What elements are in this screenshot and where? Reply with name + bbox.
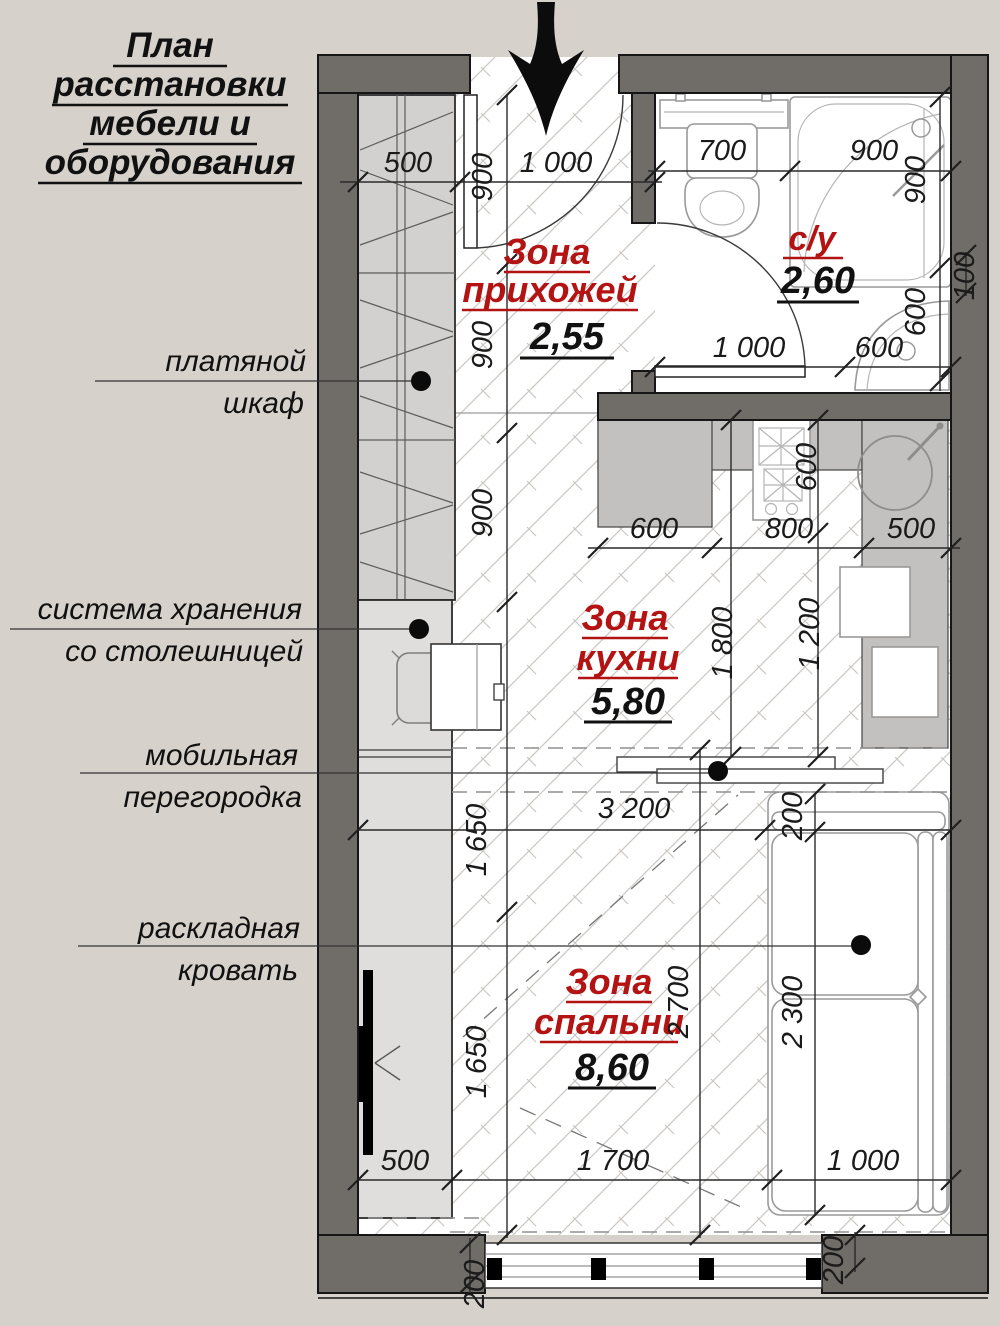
- dim-bath-100-right: 100: [949, 252, 981, 300]
- dim-bedroom-200: 200: [777, 792, 809, 841]
- title-line-1: План: [126, 26, 214, 65]
- dim-hall-1000: 1 000: [520, 147, 593, 179]
- bedroom-name-2: спальни: [534, 1001, 684, 1042]
- hallway-area: 2,55: [529, 316, 605, 358]
- dim-bottom-1700: 1 700: [577, 1145, 650, 1177]
- annotation-wardrobe-line2: шкаф: [223, 387, 304, 420]
- annotation-storage-line1: система хранения: [38, 593, 302, 626]
- title-line-3: мебели и: [89, 104, 251, 143]
- dim-bedroom-2300: 2 300: [777, 976, 809, 1050]
- dim-bath-700: 700: [698, 135, 746, 167]
- dim-bedroom-1650-2: 1 650: [461, 1026, 493, 1099]
- floor-plan-drawing: План расстановки мебели и оборудования п…: [0, 0, 1000, 1326]
- dim-kitchen-1200: 1 200: [794, 598, 826, 671]
- kitchen-appliance-2: [872, 647, 938, 717]
- dim-kitchen-600-top: 600: [791, 443, 823, 491]
- annotation-wardrobe-line1: платяной: [165, 345, 306, 378]
- dim-bath-600-right: 600: [900, 288, 932, 336]
- dim-bottom-200-right: 200: [818, 1236, 850, 1285]
- bathroom-area: 2,60: [780, 260, 855, 302]
- bedroom-area: 8,60: [575, 1047, 649, 1089]
- hallway-name-1: Зона: [504, 231, 591, 272]
- dim-bedroom-3200: 3 200: [598, 793, 671, 825]
- title-line-2: расстановки: [52, 65, 286, 104]
- annotation-storage-line2: со столешницей: [65, 635, 303, 668]
- title-line-4: оборудования: [45, 143, 296, 182]
- kitchen-name-1: Зона: [582, 597, 669, 638]
- dim-bath-900-top: 900: [850, 135, 898, 167]
- bedroom-name-1: Зона: [566, 961, 653, 1002]
- floor-plan-page: План расстановки мебели и оборудования п…: [0, 0, 1000, 1326]
- dim-bottom-1000: 1 000: [827, 1145, 900, 1177]
- hallway-name-2: прихожей: [462, 269, 637, 310]
- dim-bath-900-right: 900: [900, 156, 932, 204]
- dim-kitchen-800: 800: [765, 513, 813, 545]
- bathroom-name: с/у: [788, 220, 837, 258]
- kitchen-area: 5,80: [591, 681, 665, 723]
- annotation-partition-line2: перегородка: [123, 781, 302, 814]
- dim-kitchen-600-left: 600: [630, 513, 678, 545]
- dim-hall-500: 500: [384, 147, 432, 179]
- dim-hall-900-2: 900: [467, 321, 499, 369]
- dim-bottom-500: 500: [381, 1145, 429, 1177]
- desk: [431, 644, 504, 730]
- annotation-bed-line1: раскладная: [137, 912, 300, 945]
- zone-label-kitchen: Зона кухни 5,80: [577, 597, 680, 723]
- dim-bedroom-2700: 2 700: [663, 966, 695, 1040]
- dim-bottom-200-left: 200: [459, 1260, 491, 1309]
- dim-bath-600-bottom: 600: [855, 332, 903, 364]
- annotation-partition-line1: мобильная: [145, 739, 298, 772]
- dim-kitchen-1800: 1 800: [707, 607, 739, 680]
- dim-bedroom-1650-1: 1 650: [461, 804, 493, 877]
- annotation-bed-line2: кровать: [178, 954, 298, 987]
- dim-kitchen-500: 500: [887, 513, 935, 545]
- dim-hall-900-3: 900: [467, 489, 499, 537]
- kitchen-name-2: кухни: [577, 637, 680, 678]
- kitchen-appliance-1: [840, 567, 910, 637]
- dim-hall-900-1: 900: [467, 153, 499, 201]
- dim-bath-1000-bottom: 1 000: [713, 332, 786, 364]
